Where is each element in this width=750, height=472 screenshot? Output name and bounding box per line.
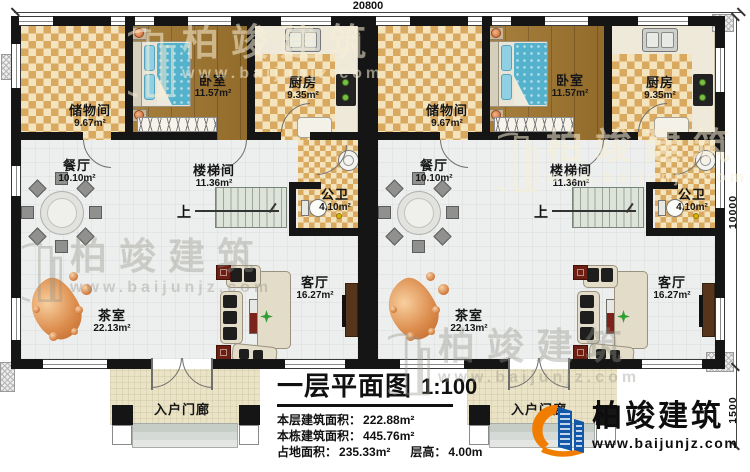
window [19,16,53,26]
room-area: 10.10m² [389,173,479,184]
stat-row: 占地面积： 235.33m² 层高： 4.00m [277,444,482,460]
room-name: 公卫 [290,188,380,202]
room-name: 卧室 [525,74,615,88]
room-name: 楼梯间 [169,164,259,178]
room-area: 4.10m² [290,202,380,213]
sofa-cushion [596,349,606,359]
pillow [144,74,155,100]
exterior-wall-top [511,16,545,26]
door-arc-bathroom [674,145,704,175]
window [188,16,231,26]
room-label-bathroom: 公卫 4.10m² [647,188,737,213]
exterior-wall-bottom [464,359,509,369]
chair [446,206,459,219]
room-name: 客厅 [270,276,360,290]
window [281,16,331,26]
plan-title: 一层平面图 [277,372,412,401]
entry-door-arc-right [539,358,569,388]
exterior-wall-bottom [702,359,725,369]
room-label-porch: 入户门廊 [137,403,227,417]
porch-pillar [239,405,260,425]
porch-pillar [112,405,133,425]
room-label-kitchen: 厨房 9.35m² [258,76,348,101]
side-table [573,265,588,280]
dimension-line-top [14,12,742,13]
sofa-cushion [239,349,249,359]
tea-ball [438,284,449,295]
porch-pillar-base [112,425,132,445]
exterior-wall-top [410,16,468,26]
window [43,359,107,369]
stairs-up-label: 上 [534,202,548,222]
room-area: 16.27m² [270,290,360,301]
stat-label: 本栋建筑面积： [277,428,361,444]
sink-basin [304,32,317,48]
stat-value: 4.00m [448,444,482,460]
pillow [501,45,512,71]
room-name: 厨房 [258,76,348,90]
title-underline [277,404,453,407]
sofa-cushion [223,295,237,308]
room-area: 9.35m² [258,90,348,101]
exterior-wall-top [331,16,368,26]
room-area: 16.27m² [627,290,717,301]
room-label-kitchen: 厨房 9.35m² [615,76,705,101]
room-area: 9.67m² [45,118,135,129]
dimension-top-width: 20800 [338,0,398,12]
exterior-wall-top [231,16,281,26]
side-table [216,345,231,360]
window [492,16,511,26]
entry-door-leaf [211,358,213,390]
room-area: 11.36m² [169,178,259,189]
window [638,16,688,26]
room-label-living: 客厅 16.27m² [627,276,717,301]
tea-ball [390,306,397,313]
stat-value: 222.88m² [363,412,414,428]
room-area: 4.10m² [647,202,737,213]
sofa-cushion [580,327,594,340]
plan-stats: 本层建筑面积： 222.88m² 本栋建筑面积： 445.76m² 占地面积： … [277,412,482,460]
room-name: 储物间 [45,104,135,118]
title-row: 一层平面图 1:100 [277,372,482,401]
room-label-dining: 餐厅 10.10m² [389,159,479,184]
room-area: 11.57m² [525,88,615,99]
sofa-cushion [223,311,237,324]
tea-ball [69,272,78,281]
unit-right: 上 [368,16,725,369]
sink-basin [646,32,659,48]
exterior-wall-bottom [11,359,43,369]
exterior-wall-top [368,16,376,26]
room-label-tearoom: 茶室 22.13m² [424,309,514,334]
sink-basin [289,32,302,48]
tea-ball [81,284,92,295]
window [285,359,345,369]
room-area: 11.57m² [168,88,258,99]
room-label-living: 客厅 16.27m² [270,276,360,301]
sofa-cushion [244,268,256,282]
entry-door-arc-left [509,358,539,388]
room-name: 公卫 [647,188,737,202]
floor-drain-icon [693,213,699,219]
room-label-bedroom: 卧室 11.57m² [168,74,258,99]
room-label-bathroom: 公卫 4.10m² [290,188,380,213]
stat-label: 层高： [410,444,446,460]
window [715,298,725,340]
entry-door-arc-left [152,358,182,388]
unit-left: 上 [11,16,368,369]
sofa-cushion [580,295,594,308]
window [715,48,725,92]
wall [667,132,715,140]
stat-value: 235.33m² [339,444,390,460]
room-area: 9.35m² [615,90,705,101]
wardrobe [137,117,217,132]
window [642,359,702,369]
room-label-stairwell: 楼梯间 11.36m² [169,164,259,189]
exterior-wall-top [482,16,492,26]
stat-value: 445.76m² [363,428,414,444]
window [11,166,21,196]
window [111,16,125,26]
exterior-wall-top [688,16,725,26]
wall [468,132,574,140]
room-label-bedroom: 卧室 11.57m² [525,74,615,99]
side-table [216,265,231,280]
room-name: 茶室 [424,309,514,323]
staircase [215,187,287,228]
first-floor-plan: 上 [0,0,750,472]
sofa-cushion [223,327,237,340]
exterior-wall-bottom [368,359,400,369]
window [400,359,464,369]
door-arc-kitchen [638,103,667,132]
wall [247,132,281,140]
room-label-tearoom: 茶室 22.13m² [67,309,157,334]
floor-drain-icon [336,213,342,219]
room-name: 餐厅 [389,159,479,173]
exterior-wall-top [11,16,19,26]
lamp-icon [134,28,144,38]
stat-row: 本栋建筑面积： 445.76m² [277,428,482,444]
porch-pillar-base [239,425,259,445]
stat-label: 占地面积： [277,444,337,460]
sofa-cushion [580,311,594,324]
wall [310,132,358,140]
tea-ball [33,306,40,313]
room-name: 餐厅 [32,159,122,173]
sink-basin [661,32,674,48]
window [11,44,21,88]
chair [21,206,34,219]
stair-direction-line [195,210,279,212]
company-logo: 柏竣建筑 www.baijunjz.com [531,401,738,459]
wall [289,228,358,236]
exterior-wall-top [53,16,111,26]
dining-table-top [47,198,77,228]
room-area: 10.10m² [32,173,122,184]
dining-table-top [404,198,434,228]
room-area: 22.13m² [67,323,157,334]
chair [412,240,425,253]
company-name: 柏竣建筑 [592,401,738,433]
room-name: 厨房 [615,76,705,90]
sofa-cushion [601,268,613,282]
sofa-cushion [230,268,242,282]
chair [55,240,68,253]
entry-door-leaf [151,358,153,390]
room-name: 卧室 [168,74,258,88]
room-name: 楼梯间 [526,164,616,178]
wall [111,132,217,140]
exterior-wall-bottom [212,359,285,369]
pillow [144,45,155,71]
room-label-storage: 储物间 9.67m² [402,104,492,129]
room-label-stairwell: 楼梯间 11.36m² [526,164,616,189]
tea-ball [406,332,415,341]
window [376,16,410,26]
sofa-cushion [587,268,599,282]
wall [21,132,83,140]
wall [378,132,440,140]
window [545,16,588,26]
exterior-wall-bottom [345,359,368,369]
room-area: 22.13m² [424,323,514,334]
spacer [392,444,408,460]
wall [604,132,638,140]
tea-ball [426,272,435,281]
room-name: 储物间 [402,104,492,118]
company-logo-text: 柏竣建筑 www.baijunjz.com [592,401,738,451]
room-name: 客厅 [627,276,717,290]
exterior-wall-bottom [107,359,152,369]
staircase [572,187,644,228]
exterior-wall-top [125,16,135,26]
door-arc-kitchen [281,103,310,132]
door-arc-bathroom [317,145,347,175]
exterior-wall-bottom [569,359,642,369]
wardrobe [494,117,574,132]
company-website: www.baijunjz.com [592,435,738,451]
window [11,298,21,340]
room-label-storage: 储物间 9.67m² [45,104,135,129]
exterior-wall-top [154,16,188,26]
room-area: 9.67m² [402,118,492,129]
stat-label: 本层建筑面积： [277,412,361,428]
stair-direction-line [552,210,636,212]
stairs-up-label: 上 [177,202,191,222]
window [468,16,482,26]
title-block: 一层平面图 1:100 本层建筑面积： 222.88m² 本栋建筑面积： 445… [277,372,482,460]
room-label-dining: 餐厅 10.10m² [32,159,122,184]
room-name: 茶室 [67,309,157,323]
exterior-wall-top [588,16,638,26]
company-logo-icon [531,401,587,459]
entry-door-arc-right [182,358,212,388]
room-area: 11.36m² [526,178,616,189]
tea-ball [49,332,58,341]
pillow [501,74,512,100]
stat-row: 本层建筑面积： 222.88m² [277,412,482,428]
chair [89,206,102,219]
side-table [573,345,588,360]
window [135,16,154,26]
entry-door-leaf [568,358,570,390]
entry-door-leaf [508,358,510,390]
lamp-icon [491,28,501,38]
plan-scale: 1:100 [421,374,477,401]
wall [646,228,715,236]
room-name: 入户门廊 [137,403,227,417]
entry-steps [132,423,238,448]
